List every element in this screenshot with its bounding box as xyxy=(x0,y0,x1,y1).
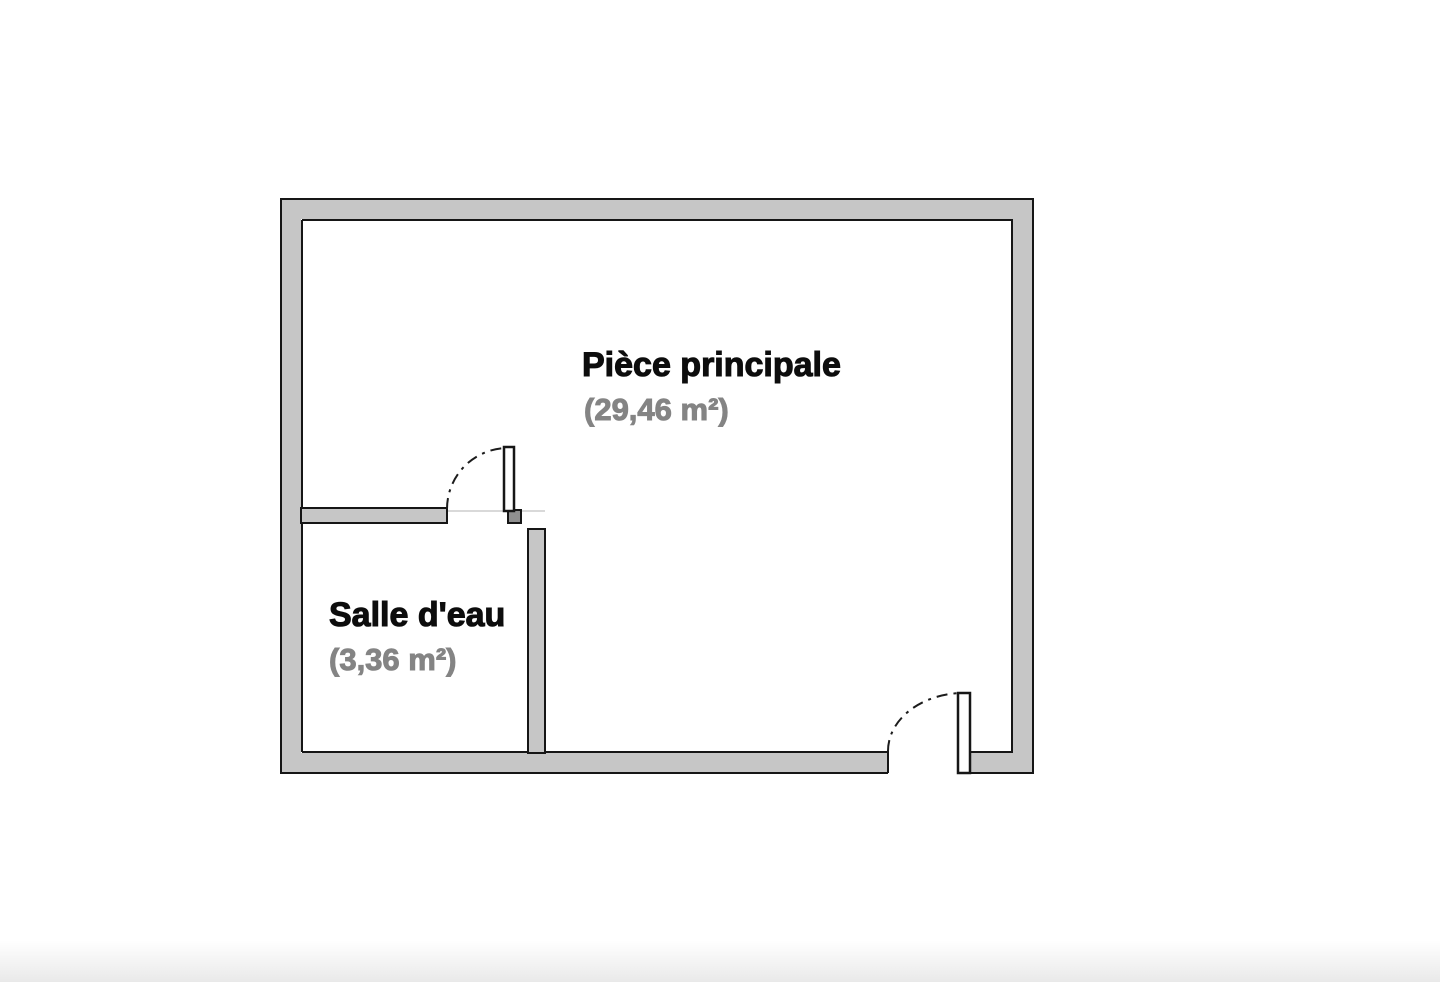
outer-wall-right xyxy=(1013,198,1034,774)
entrance-door-swing-arc xyxy=(888,693,964,751)
page: Pièce principale (29,46 m²) Salle d'eau … xyxy=(0,0,1440,982)
bathroom-door-swing-arc xyxy=(447,448,508,509)
outer-wall-bottom-left-segment xyxy=(301,753,888,774)
outer-wall-outline xyxy=(281,199,1033,773)
outer-wall-top xyxy=(280,198,1034,219)
room-area-piece-principale: (29,46 m²) xyxy=(584,394,729,425)
outer-wall-left xyxy=(280,198,301,774)
wall-fills xyxy=(280,198,1034,774)
page-bottom-fade xyxy=(0,940,1440,982)
partition-wall xyxy=(528,529,545,753)
bathroom-top-wall xyxy=(301,508,447,523)
floorplan: Pièce principale (29,46 m²) Salle d'eau … xyxy=(280,198,1034,776)
room-label-salle-deau: Salle d'eau xyxy=(329,598,505,632)
bathroom-door-leaf xyxy=(504,447,514,511)
entrance-door-leaf xyxy=(958,693,970,773)
floorplan-canvas xyxy=(280,198,1034,776)
outer-wall-bottom-right-segment xyxy=(970,753,1013,774)
room-area-salle-deau: (3,36 m²) xyxy=(329,644,456,675)
room-label-piece-principale: Pièce principale xyxy=(582,348,841,382)
